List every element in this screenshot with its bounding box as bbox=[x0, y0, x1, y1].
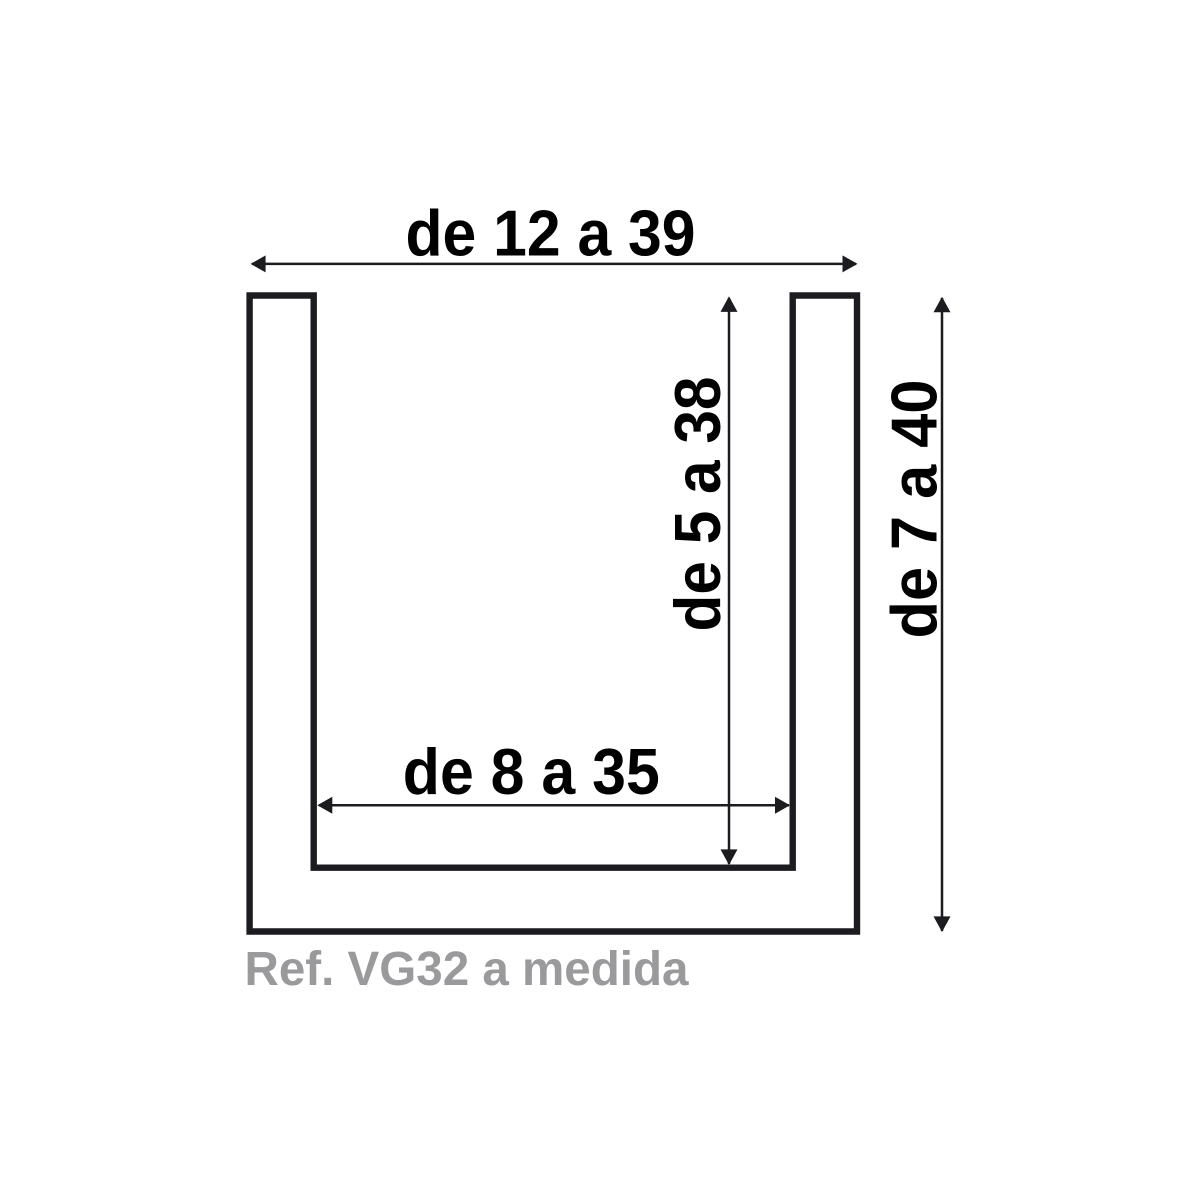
svg-text:de 8 a 35: de 8 a 35 bbox=[403, 735, 660, 808]
svg-text:Ref. VG32 a medida: Ref. VG32 a medida bbox=[245, 943, 689, 996]
svg-text:de 7 a 40: de 7 a 40 bbox=[877, 379, 950, 638]
svg-text:de 12 a 39: de 12 a 39 bbox=[406, 197, 696, 270]
svg-text:de 5 a 38: de 5 a 38 bbox=[661, 377, 734, 632]
